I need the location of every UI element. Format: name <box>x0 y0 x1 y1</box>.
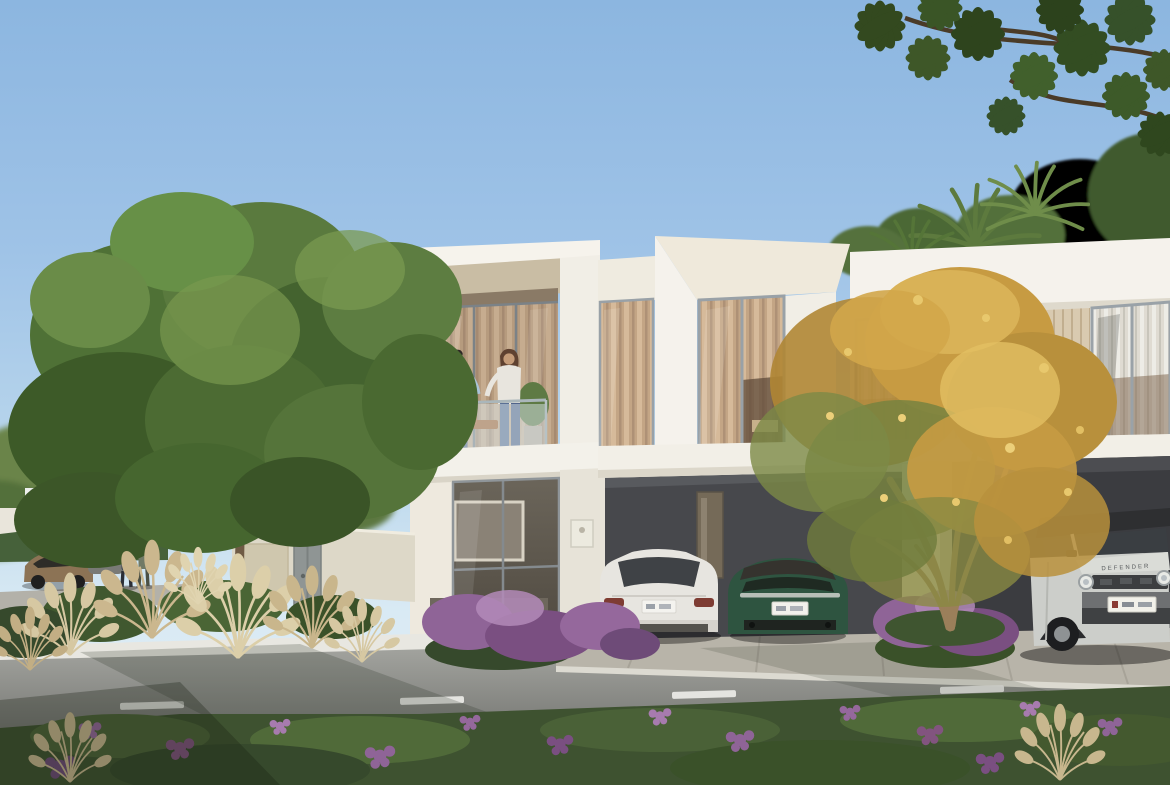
render-scene: DEFENDER <box>0 0 1170 785</box>
tree-canopy <box>8 192 478 568</box>
wall-above-window <box>598 256 655 302</box>
right-column <box>560 255 600 472</box>
overhanging-branches <box>853 0 1170 158</box>
sedan-taillight-right <box>694 598 714 607</box>
sedan-rear-window <box>618 557 700 587</box>
scene-canvas: DEFENDER <box>0 0 1170 785</box>
coupe-taillight-band <box>740 593 840 598</box>
house-number-plaque <box>571 520 593 547</box>
plaque-emblem <box>579 527 585 533</box>
window-between <box>598 299 653 460</box>
